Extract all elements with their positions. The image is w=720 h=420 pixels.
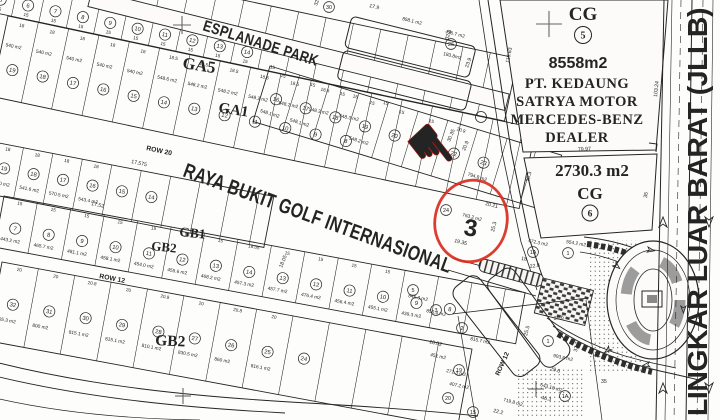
lot-number: 7 — [13, 226, 17, 232]
lot-number: 26 — [448, 42, 454, 48]
lot-number: 5 — [0, 0, 3, 4]
lot-number: 19 — [456, 368, 462, 374]
lot-area: 805.3 m2 — [0, 316, 17, 326]
lot-dimension: 20 — [53, 274, 59, 280]
lot-dimension: 15 — [50, 207, 56, 213]
lot-number: 2 — [461, 326, 464, 332]
lot-dimension: 18.5 — [169, 54, 179, 61]
lot-dimension: 15 — [310, 82, 317, 88]
row12-south-street-label: ROW 12 — [494, 351, 511, 377]
lot-dimension: 18.5 — [259, 74, 269, 81]
jllb-road-label: LINGKAR LUAR BARAT (JLLB) — [682, 8, 713, 416]
lot-number: 14 — [160, 100, 168, 107]
lot-dimension: 15 — [187, 47, 193, 53]
lot-number: 8 — [80, 15, 84, 22]
row12-west-street-label: ROW 12 — [99, 273, 126, 285]
map-svg: 5678910111213141515151515151515151515191… — [0, 0, 720, 420]
lot-area: 457.7 m2 — [267, 286, 288, 296]
lot-dimension: 15 — [78, 23, 84, 29]
lot-number: 1 — [567, 251, 570, 257]
contour-line — [0, 398, 200, 420]
lot-area: 439.3 m2 — [401, 310, 422, 320]
lot-number: 13 — [212, 263, 219, 270]
lot-area: 548.2 m2 — [187, 81, 208, 91]
lot-dimension: 18 — [110, 42, 116, 48]
lot-number: 17 — [69, 80, 77, 87]
lot-number: 18 — [39, 74, 47, 81]
lot-number: 9 — [80, 239, 84, 245]
southwest-curves — [0, 362, 478, 420]
lot-area: 465.7 m2 — [33, 242, 54, 252]
dimension-label: 22.2 — [493, 408, 504, 416]
cg5-owner-line3: MERCEDES-BENZ — [511, 112, 644, 128]
lot-dimension: 15 — [84, 213, 90, 219]
lot-area: 830.5 m2 — [177, 350, 198, 360]
lot-dimension: 15 — [339, 91, 346, 97]
highlight-number: 3 — [462, 214, 479, 243]
dimension-label: 35 — [601, 379, 607, 385]
dimension-label: 18.02 — [429, 339, 443, 348]
lot-number: 9 — [108, 21, 112, 28]
cg6-label: CG — [577, 184, 603, 203]
lot-number: 10 — [112, 245, 119, 252]
lot-number: 12 — [179, 257, 186, 264]
dimension-label: 17.52 — [91, 201, 105, 210]
lot-dimension: 18 — [34, 152, 40, 158]
lot-dimension: 15 — [117, 219, 123, 225]
lot-dimension: 18 — [5, 146, 11, 152]
lot-number: 16 — [89, 183, 96, 190]
lot-number: 6 — [26, 3, 30, 10]
lot-dimension: 15 — [23, 12, 29, 18]
lot-dimension: 18 — [19, 23, 25, 29]
lot-area: 548.2 m2 — [248, 94, 269, 104]
lot-number: 10 — [379, 294, 386, 301]
block-label-gb2-north: GB2 — [151, 238, 178, 256]
lot-area: 860 m2 — [214, 356, 231, 365]
lot-dimension: 15 — [369, 100, 376, 106]
block-label-gb1: GB1 — [179, 224, 207, 242]
lot-area: 455.6 m2 — [167, 267, 188, 277]
lot-dimension: 15 — [399, 109, 406, 115]
lot-area: 540 m2 — [5, 42, 22, 51]
lot-area: 407.2 m2 — [449, 381, 470, 391]
cg5-parcel: CG 5 8558m2 PT. KEDAUNG SATRYA MOTOR MER… — [500, 0, 668, 152]
lot-area: 816.1 m2 — [250, 363, 271, 373]
lot-area: 468.2 m2 — [200, 273, 221, 283]
lot-number: 17 — [59, 177, 66, 184]
lot-dimension: 15 — [0, 6, 2, 12]
lot-area: 540 m2 — [35, 49, 52, 58]
lot-number: 18 — [331, 114, 339, 122]
cg5-owner-line2: SATRYA MOTOR — [516, 94, 638, 110]
lot-number: 12 — [188, 38, 196, 45]
lot-number: 23 — [479, 160, 487, 168]
lot-dimension: 15 — [105, 29, 111, 35]
lot-number: 27 — [191, 336, 198, 343]
lot-area: 451 m2 — [430, 352, 447, 361]
lot-area: 800 m2 — [32, 323, 49, 332]
cg5-owner-line1: PT. KEDAUNG — [525, 76, 629, 92]
lot-number: 32 — [9, 302, 16, 309]
lot-number: 14 — [245, 269, 253, 276]
lot-area: 815.1 m2 — [68, 329, 89, 339]
cg5-area: 8558m2 — [549, 55, 608, 72]
lot-dimension: 18 — [140, 48, 146, 54]
block-label-gb2-south: GB2 — [155, 332, 186, 351]
lot-area: 457.3 m2 — [234, 279, 255, 289]
cg6-number: 6 — [588, 210, 593, 220]
lot-area: 570.5 m2 — [48, 190, 69, 200]
dimension-label: 17.9 — [369, 3, 380, 11]
lot-number: 31 — [45, 309, 52, 316]
lot-area: 454.0 m2 — [133, 261, 154, 271]
lot-number: 11 — [346, 288, 353, 295]
lot-dimension: 18.5 — [290, 80, 300, 87]
dimension-label: 32.7 — [313, 0, 322, 7]
lot-number: 25 — [264, 349, 271, 356]
lot-number: 7 — [53, 9, 57, 16]
lot-number: 29 — [118, 322, 125, 329]
lot-area: 540 m2 — [96, 62, 113, 71]
site-plan-map[interactable]: 5678910111213141515151515151515151515191… — [0, 0, 720, 420]
lot-area: 455.1 m2 — [367, 304, 388, 314]
lot-area: 472.3 m2 — [528, 238, 549, 248]
block-label-ga5: GA5 — [181, 53, 217, 77]
lot-number: 1 — [547, 339, 550, 345]
lot-dimension: 20.8 — [233, 307, 243, 314]
lot-number: 10 — [134, 26, 142, 33]
lane-line — [665, 0, 672, 420]
lot-dimension: 18 — [49, 29, 55, 35]
lot-number: 30 — [326, 5, 332, 11]
lot-dimension: 15 — [160, 41, 166, 47]
lot-number: 11 — [161, 32, 168, 39]
lot-number: 15 — [130, 93, 138, 100]
lot-number: 15 — [118, 189, 125, 196]
lot-number: 24 — [443, 208, 449, 214]
cg6-area: 2730.3 m2 — [555, 161, 629, 180]
lot-number: 24 — [300, 356, 308, 363]
lot-dimension: 18.5 — [320, 87, 330, 94]
lot-area: 548.6 m2 — [157, 74, 178, 84]
lot-dimension: 15 — [151, 225, 157, 231]
lot-dimension: 18.5 — [229, 67, 239, 74]
lot-area: 548.1 m2 — [289, 117, 310, 129]
lot-number: 30 — [82, 316, 89, 323]
lot-dimension: 15 — [385, 269, 391, 275]
lot-number: 13 — [279, 276, 286, 283]
lot-dimension: 15 — [50, 18, 56, 24]
dimension-label: 17.575 — [131, 159, 148, 168]
lot-area: 443.2 m2 — [0, 236, 21, 246]
curved-street-edge — [0, 362, 478, 416]
lot-dimension: 20.8 — [87, 280, 97, 287]
lot-number: 19 — [361, 124, 369, 132]
lot-number: 1A — [562, 394, 569, 400]
lot-dimension: 15 — [218, 238, 224, 244]
lot-area: 456.4 m2 — [334, 298, 355, 308]
lot-number: 19 — [0, 166, 7, 173]
lot-number: 19 — [8, 67, 16, 74]
lot-area: 548.2 m2 — [348, 135, 369, 147]
lot-area: 554.2 m2 — [566, 239, 587, 248]
lot-number: 18 — [30, 172, 37, 179]
lot-dimension: 20 — [126, 287, 132, 293]
lot-number: 8 — [46, 233, 50, 239]
dimension-label: 25.6 — [553, 315, 564, 322]
pointing-hand-icon: ☛ — [388, 107, 474, 191]
dimension-label: 20.21 — [485, 201, 499, 210]
lot-dimension: 18 — [93, 164, 99, 170]
cg5-owner-line4: DEALER — [545, 130, 608, 146]
lot-area: 548.3 m2 — [339, 113, 360, 123]
lot-dimension: 20.8 — [160, 293, 170, 300]
lot-number: 3 — [435, 308, 438, 314]
lot-number: 8 — [448, 307, 452, 313]
lot-dimension: 15 — [242, 58, 248, 64]
lot-number: 20 — [445, 396, 451, 402]
lot-dimension: 20 — [16, 267, 22, 273]
lot-dimension: 18 — [79, 35, 85, 41]
lot-area: 540 m2 — [66, 55, 83, 64]
lot-dimension: 15 — [133, 35, 139, 41]
lot-area: 458.1 m2 — [100, 255, 121, 265]
lot-number: 9 — [414, 301, 418, 307]
lot-number: 1A — [530, 250, 537, 256]
lot-dimension: 18 — [64, 158, 70, 164]
cg5-number: 5 — [581, 31, 586, 42]
lot-number: 16 — [99, 87, 107, 94]
lot-area: 815.7 m2 — [470, 336, 491, 346]
dimension-label: 32.7 — [573, 341, 581, 352]
lot-dimension: 20 — [271, 314, 277, 320]
cg6-parcel: 2730.3 m2 CG 6 — [524, 154, 657, 238]
lot-dimension: 18.05 — [248, 243, 261, 250]
dimension-label: 22.8 — [529, 263, 540, 270]
lot-number: 13 — [190, 106, 198, 113]
lot-area: 993.6 m2 — [553, 353, 574, 363]
lot-area: 858.1 m2 — [402, 16, 423, 27]
cross-mark — [175, 388, 191, 404]
monument-core — [647, 295, 657, 303]
lot-area: 541.6 m2 — [19, 185, 40, 195]
row20-street-label: ROW 20 — [146, 145, 173, 157]
lot-area: 183.8m2 — [443, 51, 463, 61]
pill-lot — [449, 272, 543, 380]
lot-number: 12 — [312, 282, 319, 289]
lot-area: 481.1 m2 — [66, 248, 87, 258]
lot-number: 15 — [470, 410, 476, 416]
lot-area: 815.1 m2 — [105, 336, 126, 346]
dimension-label: 79.97 — [578, 146, 591, 153]
dimension-label: 18.05 — [278, 254, 288, 268]
lot-number: 26 — [227, 343, 234, 350]
dimension-label: 25.5 — [523, 325, 531, 336]
dimension-label: 25.3 — [490, 221, 498, 232]
lot-number: 5 — [412, 288, 415, 294]
dimension-label: 18 — [521, 256, 528, 263]
lot-dimension: 15 — [280, 73, 287, 79]
lot-number: 14 — [243, 49, 251, 56]
lot-number: 20 — [390, 133, 398, 141]
lot-area: 476.4 m2 — [301, 292, 322, 302]
lot-area: 540.0 m2 — [0, 179, 10, 189]
lot-dimension: 15 — [284, 250, 290, 256]
lane-line-dashed — [674, 0, 681, 420]
lot-dimension: 15 — [17, 201, 23, 207]
lot-dimension: 15 — [318, 256, 324, 262]
lot-number: 14 — [147, 194, 155, 201]
lot-area: 540 m2 — [126, 68, 143, 77]
lot-area: 548.1 m2 — [259, 108, 280, 120]
lot-number: 13 — [216, 44, 224, 51]
cg5-label: CG — [569, 4, 598, 25]
dimension-label: 35 — [643, 192, 650, 199]
lot-dimension: 20 — [198, 301, 204, 307]
lot-area: 548.2 m2 — [217, 87, 238, 97]
stipple-area — [518, 368, 584, 418]
lot-dimension: 15 — [351, 263, 357, 269]
